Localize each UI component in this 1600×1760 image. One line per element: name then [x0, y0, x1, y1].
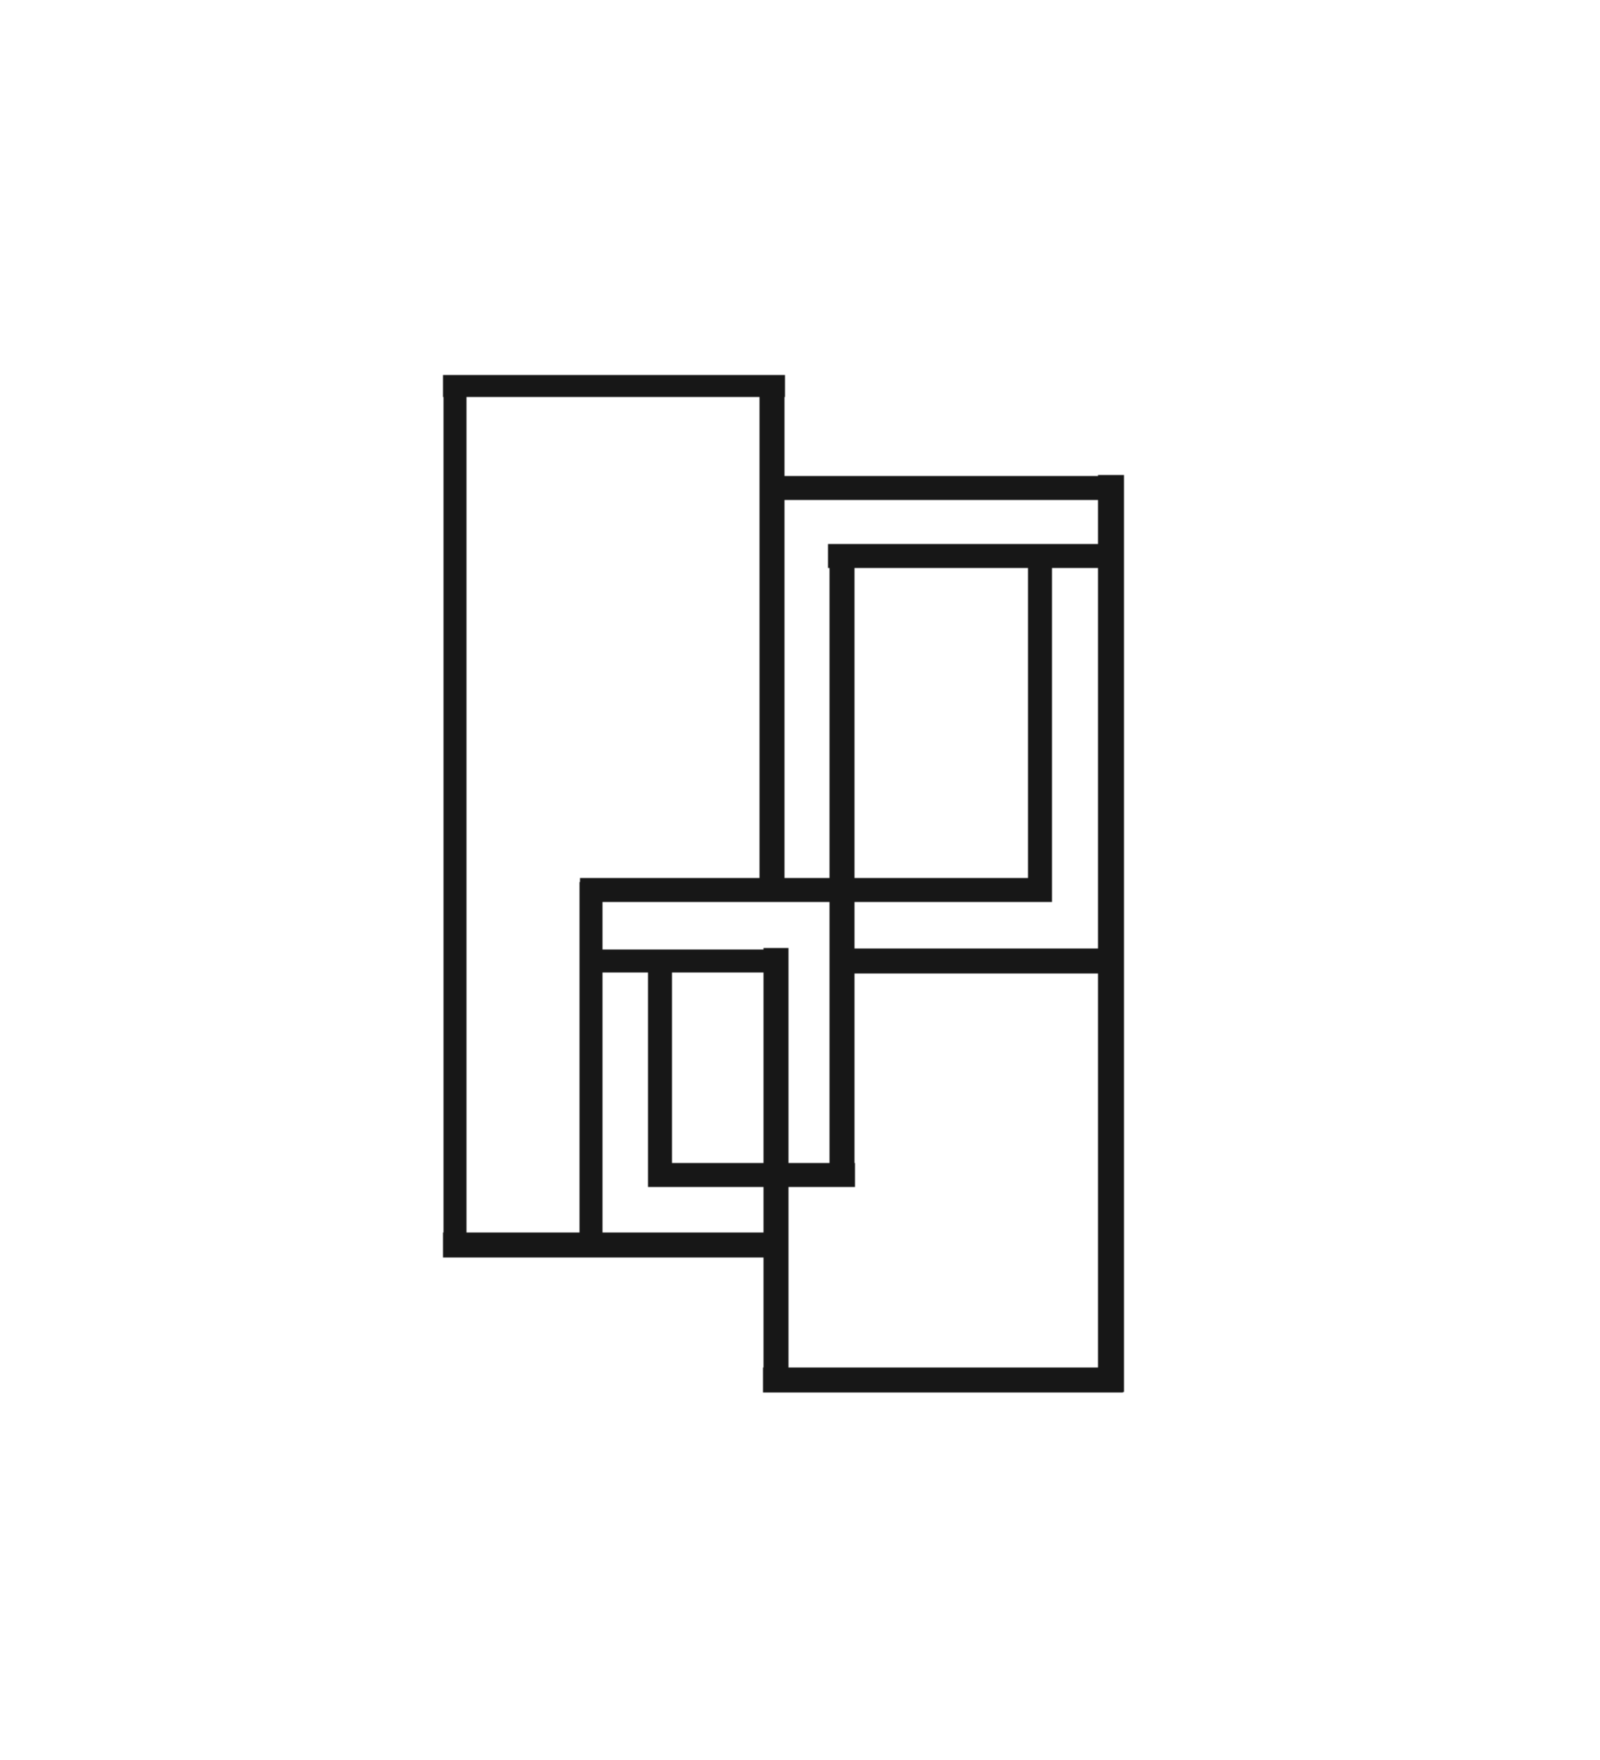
- abstract-line-art: [0, 0, 1600, 1760]
- artwork-canvas: [0, 0, 1600, 1760]
